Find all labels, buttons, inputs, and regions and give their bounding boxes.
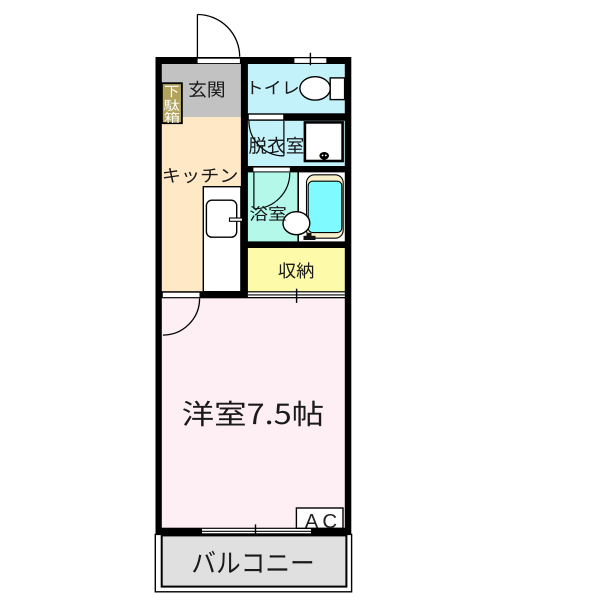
- svg-text:C: C: [322, 511, 337, 533]
- svg-text:A: A: [305, 511, 319, 533]
